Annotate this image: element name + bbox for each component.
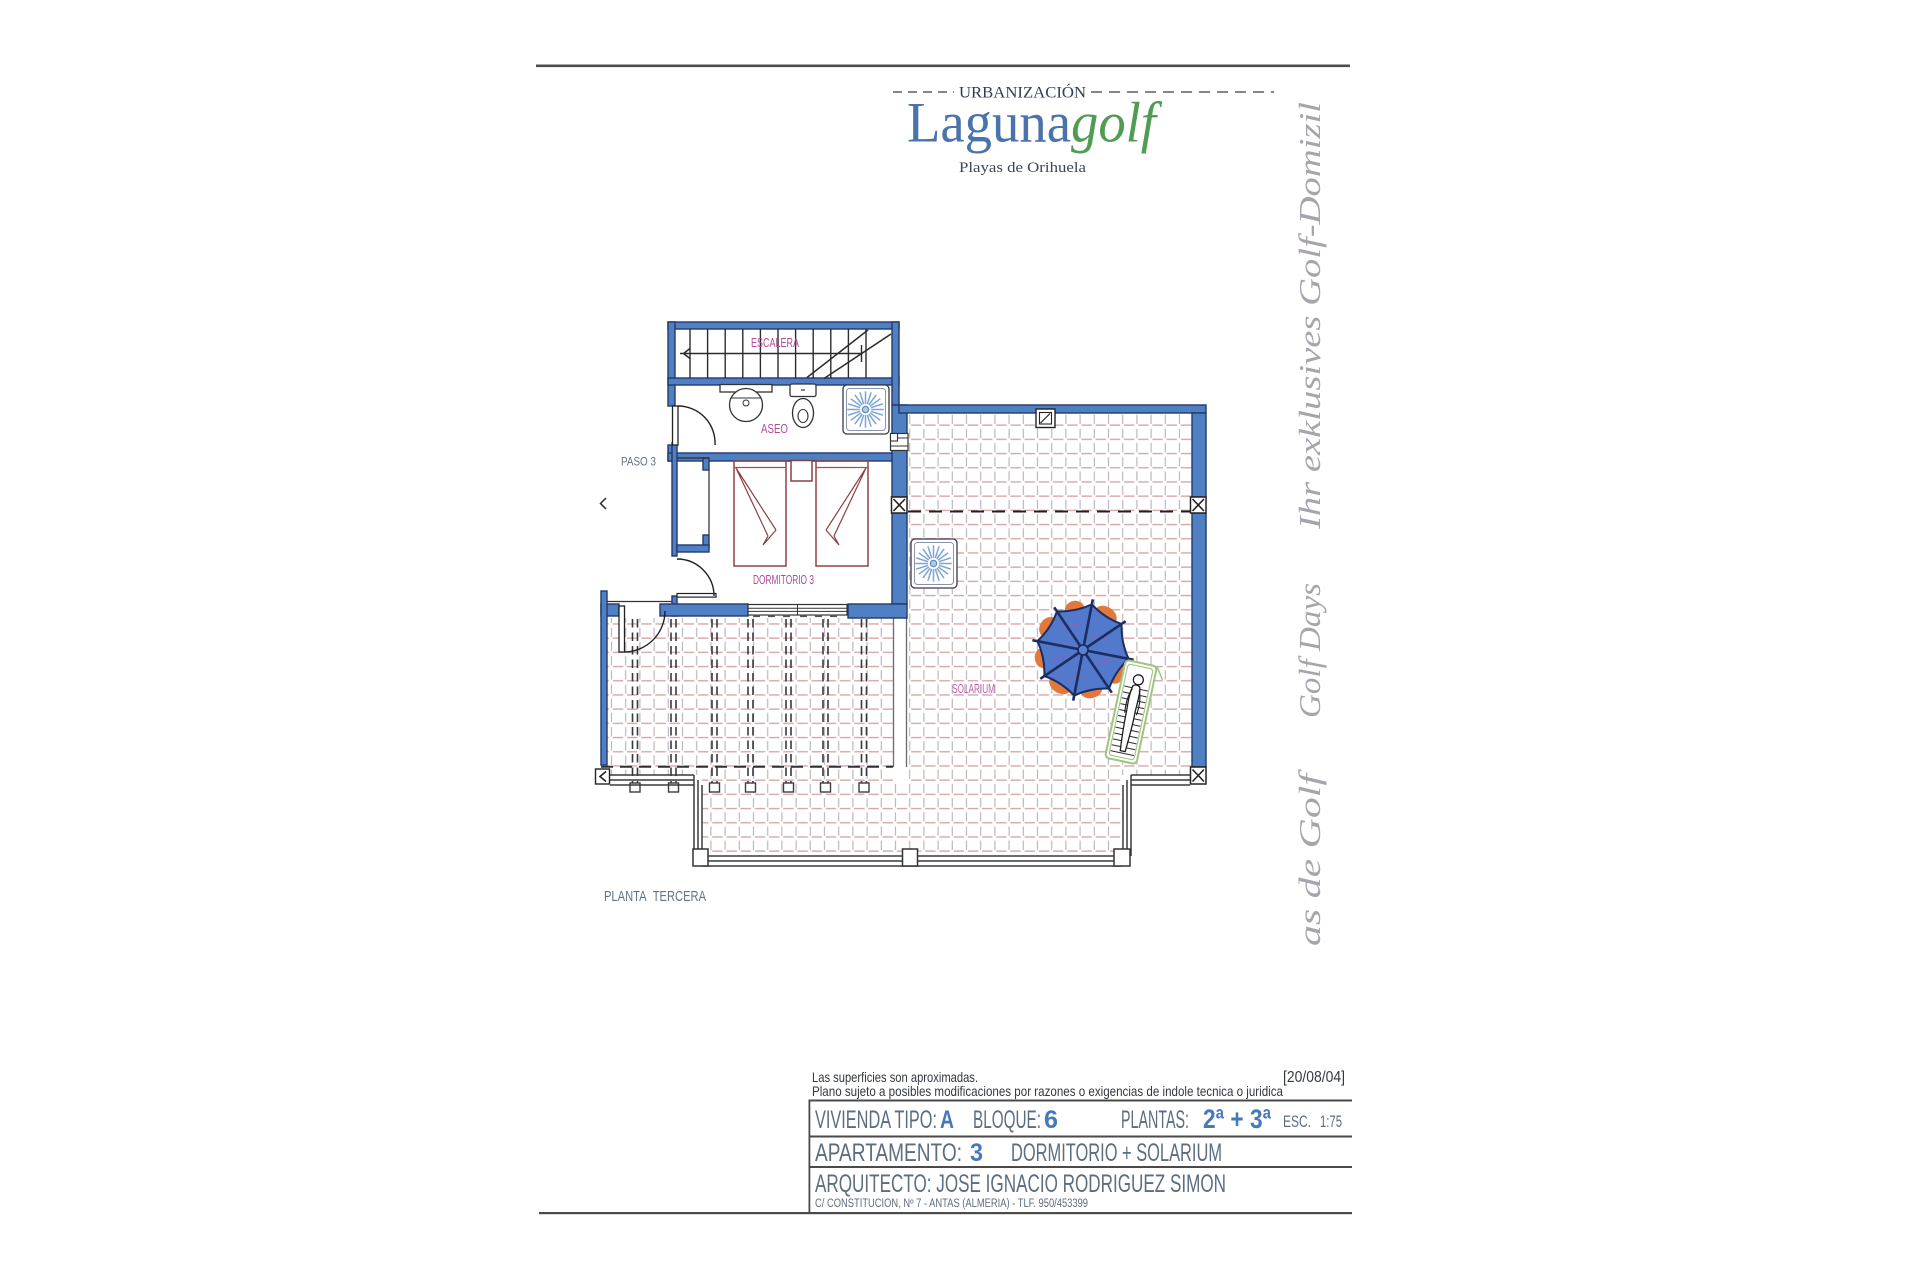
svg-text:Lagunagolf: Lagunagolf: [907, 92, 1163, 155]
svg-text:[20/08/04]: [20/08/04]: [1283, 1069, 1345, 1086]
svg-text:Golf Days: Golf Days: [1292, 583, 1327, 718]
svg-text:C/ CONSTITUCION, Nº 7 - ANTAS: C/ CONSTITUCION, Nº 7 - ANTAS (ALMERIA) …: [815, 1198, 1088, 1210]
svg-text:ARQUITECTO: JOSE IGNACIO RODRI: ARQUITECTO: JOSE IGNACIO RODRIGUEZ SIMON: [815, 1170, 1226, 1198]
svg-text:2ª + 3ª: 2ª + 3ª: [1203, 1104, 1271, 1134]
svg-text:Plano sujeto a posibles modifi: Plano sujeto a posibles modificaciones p…: [812, 1083, 1283, 1099]
svg-text:APARTAMENTO:: APARTAMENTO:: [815, 1139, 962, 1167]
svg-text:DORMITORIO + SOLARIUM: DORMITORIO + SOLARIUM: [1011, 1139, 1222, 1167]
svg-text:VIVIENDA TIPO:: VIVIENDA TIPO:: [815, 1106, 937, 1134]
svg-text:Playas de Orihuela: Playas de Orihuela: [959, 160, 1086, 176]
svg-text:ESC.: ESC.: [1283, 1112, 1311, 1131]
svg-text:ESCALERA: ESCALERA: [751, 335, 799, 350]
svg-text:A: A: [940, 1106, 954, 1134]
svg-text:as de Golf: as de Golf: [1292, 768, 1327, 946]
svg-text:PLANTAS:: PLANTAS:: [1121, 1106, 1189, 1134]
svg-text:DORMITORIO 3: DORMITORIO 3: [753, 573, 814, 587]
svg-text:PLANTA TERCERA: PLANTA TERCERA: [604, 888, 706, 905]
svg-text:3: 3: [970, 1139, 983, 1167]
svg-text:PASO 3: PASO 3: [621, 455, 656, 469]
svg-text:BLOQUE:: BLOQUE:: [973, 1106, 1041, 1134]
svg-text:Ihr exklusives Golf-Domizil: Ihr exklusives Golf-Domizil: [1292, 102, 1327, 530]
svg-text:6: 6: [1044, 1106, 1058, 1134]
svg-text:1:75: 1:75: [1320, 1112, 1342, 1131]
svg-text:SOLARIUM: SOLARIUM: [952, 681, 995, 696]
svg-text:ASEO: ASEO: [761, 422, 788, 436]
